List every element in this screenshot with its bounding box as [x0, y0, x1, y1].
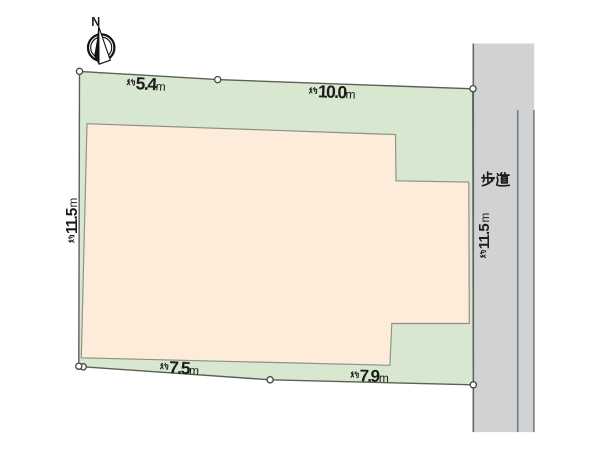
svg-text:m: m — [68, 198, 80, 208]
svg-text:11.5: 11.5 — [64, 207, 81, 234]
svg-text:m: m — [345, 87, 356, 101]
svg-text:10.0: 10.0 — [318, 81, 348, 102]
svg-text:11.5: 11.5 — [476, 224, 493, 250]
svg-text:m: m — [480, 213, 492, 223]
svg-text:m: m — [379, 371, 389, 385]
svg-text:m: m — [155, 79, 166, 94]
svg-text:m: m — [189, 363, 200, 378]
svg-text:7.9: 7.9 — [359, 366, 380, 386]
